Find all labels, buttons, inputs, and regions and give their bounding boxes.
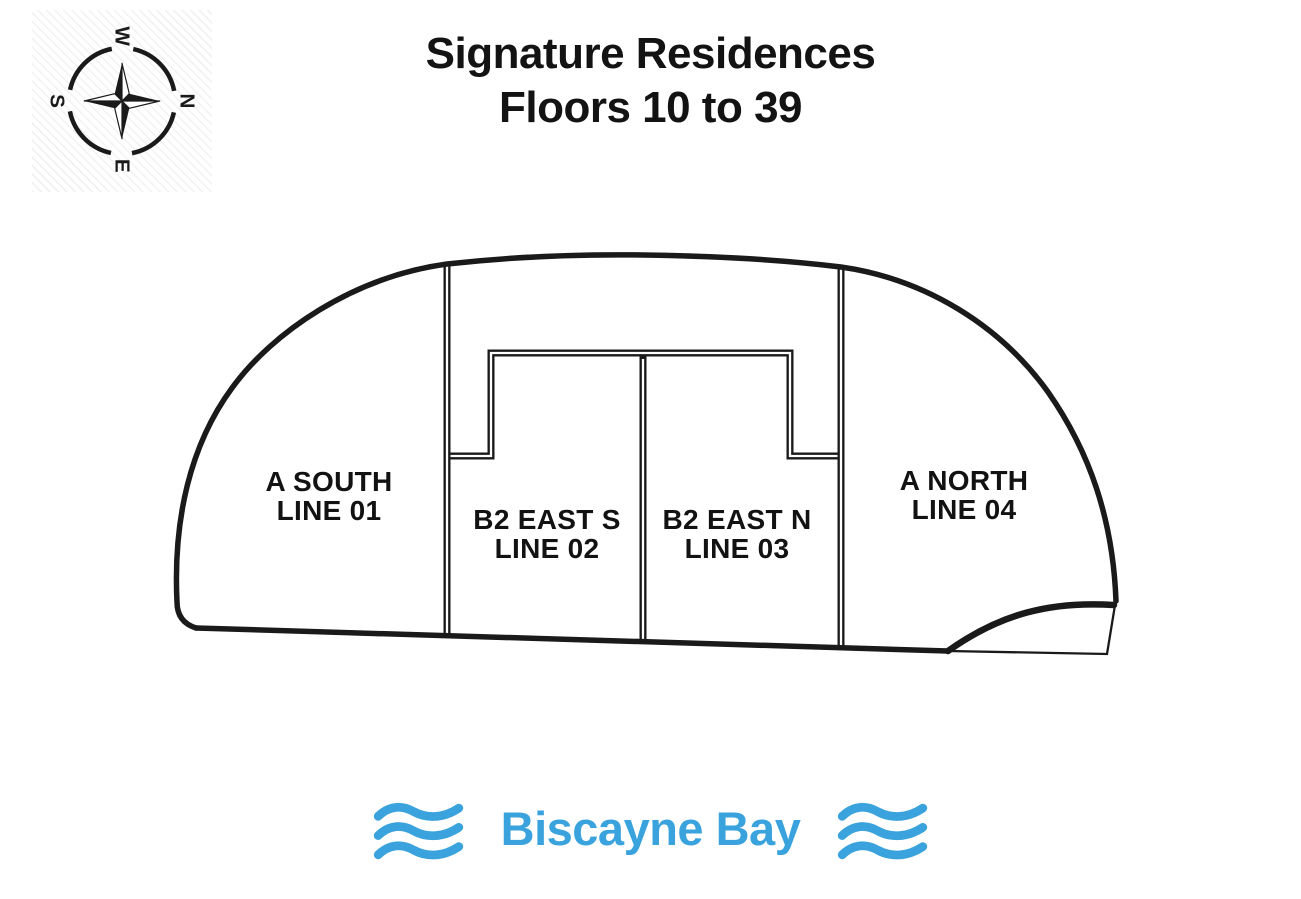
unit-03-name: B2 EAST N <box>663 505 812 534</box>
unit-04-line: LINE 04 <box>900 495 1029 524</box>
waves-icon-left <box>370 798 467 864</box>
unit-01-line: LINE 01 <box>265 496 392 525</box>
unit-label-line-04: A NORTH LINE 04 <box>900 466 1029 524</box>
floorplan-page: N E S W Signature Residences Floors 10 t… <box>0 0 1301 899</box>
outline-bottom-edge <box>196 628 948 651</box>
bay-label: Biscayne Bay <box>501 805 801 858</box>
unit-divider-walls <box>447 262 841 650</box>
floorplan-diagram <box>0 0 1301 899</box>
unit-label-line-03: B2 EAST N LINE 03 <box>663 505 812 563</box>
unit-label-line-02: B2 EAST S LINE 02 <box>473 505 620 563</box>
bay-banner: Biscayne Bay <box>0 798 1301 864</box>
waves-icon-right <box>834 798 931 864</box>
unit-04-name: A NORTH <box>900 466 1029 495</box>
unit-01-name: A SOUTH <box>265 467 392 496</box>
unit-03-line: LINE 03 <box>663 534 812 563</box>
unit-02-name: B2 EAST S <box>473 505 620 534</box>
terrace-arc <box>948 604 1114 651</box>
unit-label-line-01: A SOUTH LINE 01 <box>265 467 392 525</box>
unit-02-line: LINE 02 <box>473 534 620 563</box>
